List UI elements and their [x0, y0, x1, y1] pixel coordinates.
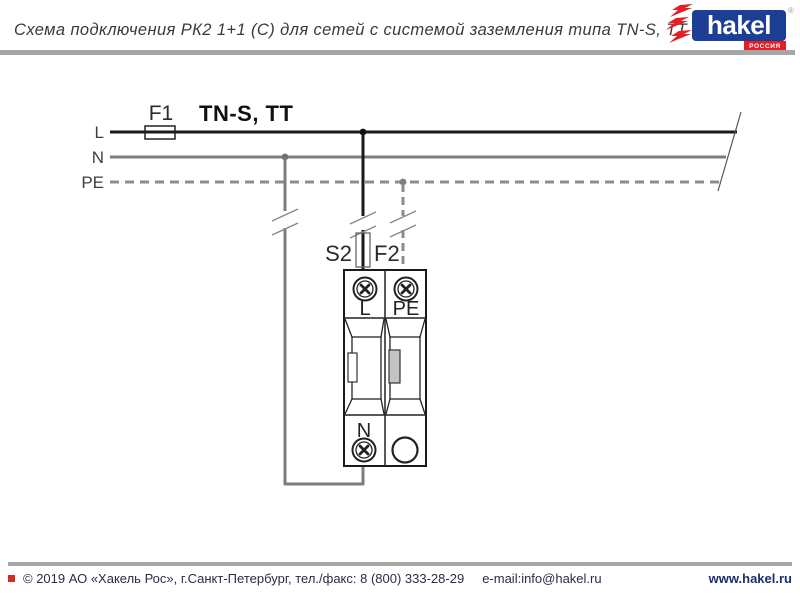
device-terminal-l-label: L [359, 298, 370, 320]
website-text: www.hakel.ru [709, 571, 792, 586]
spd-device: L PE N [344, 270, 426, 466]
system-type-label: TN-S, TT [199, 101, 293, 126]
bus-continuation-slash [718, 112, 741, 191]
device-bottom-hole [393, 438, 418, 463]
bus-label-n: N [92, 148, 104, 167]
bus-label-l: L [95, 123, 104, 142]
fuse-f1-label: F1 [149, 102, 174, 125]
fuse-f2-label: F2 [374, 241, 400, 266]
copyright-text: © 2019 АО «Хакель Рос», г.Санкт-Петербур… [23, 571, 464, 586]
module-window-right [389, 350, 400, 383]
footer-text: © 2019 АО «Хакель Рос», г.Санкт-Петербур… [23, 571, 602, 586]
wiring-schematic: L N PE F1 TN-S, TT S2 F2 [0, 0, 800, 600]
footer-bullet-icon [8, 575, 15, 582]
email-text: e-mail:info@hakel.ru [482, 571, 601, 586]
bus-label-pe: PE [81, 173, 104, 192]
module-window-left [348, 353, 357, 382]
document-page: Схема подключения РК2 1+1 (С) для сетей … [0, 0, 800, 600]
switch-s2-label: S2 [325, 241, 352, 266]
device-terminal-pe-label: PE [393, 298, 420, 320]
footer-divider [8, 562, 792, 566]
screw-terminal-n [353, 439, 376, 462]
